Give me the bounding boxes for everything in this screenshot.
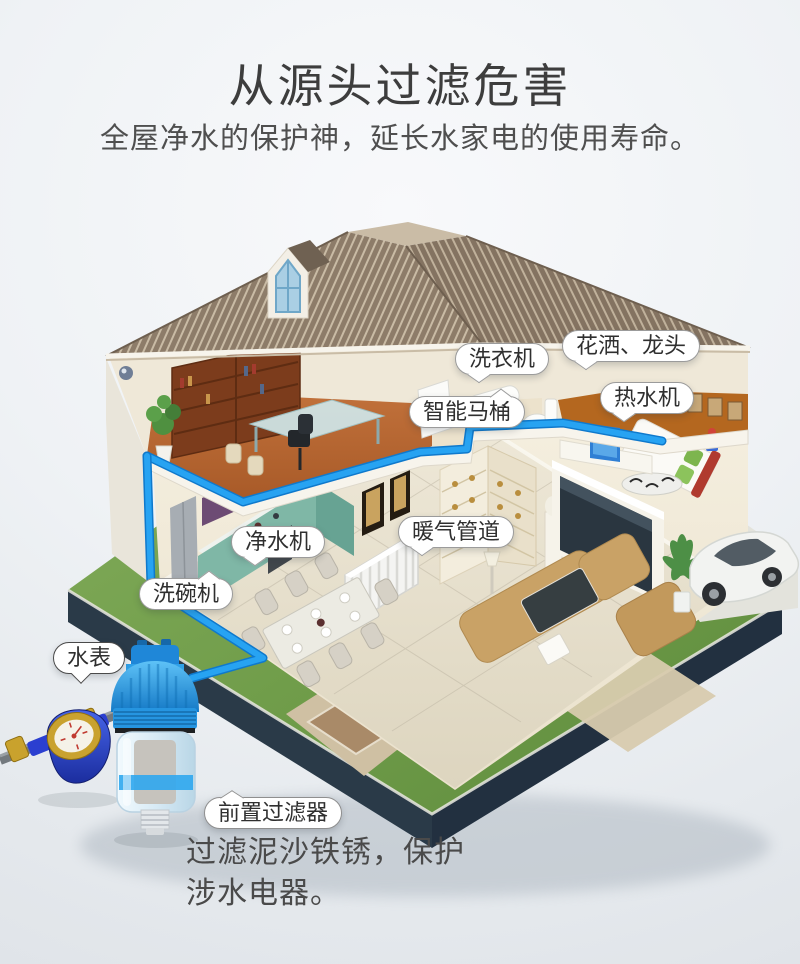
description-line2: 涉水电器。 xyxy=(186,873,465,914)
house-illustration xyxy=(0,0,800,964)
label-text: 暖气管道 xyxy=(412,519,500,544)
label-text: 前置过滤器 xyxy=(218,800,328,825)
label-text: 净水机 xyxy=(245,529,311,554)
label-dishwasher: 洗碗机 xyxy=(139,578,233,610)
label-prefilter: 前置过滤器 xyxy=(204,797,342,829)
label-water-purifier: 净水机 xyxy=(231,526,325,558)
label-shower-faucet: 花洒、龙头 xyxy=(562,330,700,362)
label-text: 热水机 xyxy=(614,385,680,410)
description-line1: 过滤泥沙铁锈，保护 xyxy=(186,832,465,873)
label-water-heater: 热水机 xyxy=(600,382,694,414)
label-heating-pipes: 暖气管道 xyxy=(398,516,514,548)
promo-page: 从源头过滤危害 全屋净水的保护神，延长水家电的使用寿命。 xyxy=(0,0,800,964)
label-water-meter: 水表 xyxy=(53,642,125,674)
label-text: 智能马桶 xyxy=(423,399,511,424)
label-text: 花洒、龙头 xyxy=(576,333,686,358)
label-washing-machine: 洗衣机 xyxy=(455,343,549,375)
label-smart-toilet: 智能马桶 xyxy=(409,396,525,428)
label-text: 洗碗机 xyxy=(153,581,219,606)
water-meter-device xyxy=(0,706,122,808)
label-text: 洗衣机 xyxy=(469,346,535,371)
prefilter-description: 过滤泥沙铁锈，保护 涉水电器。 xyxy=(186,832,465,914)
security-camera xyxy=(119,366,133,380)
label-text: 水表 xyxy=(67,645,111,670)
